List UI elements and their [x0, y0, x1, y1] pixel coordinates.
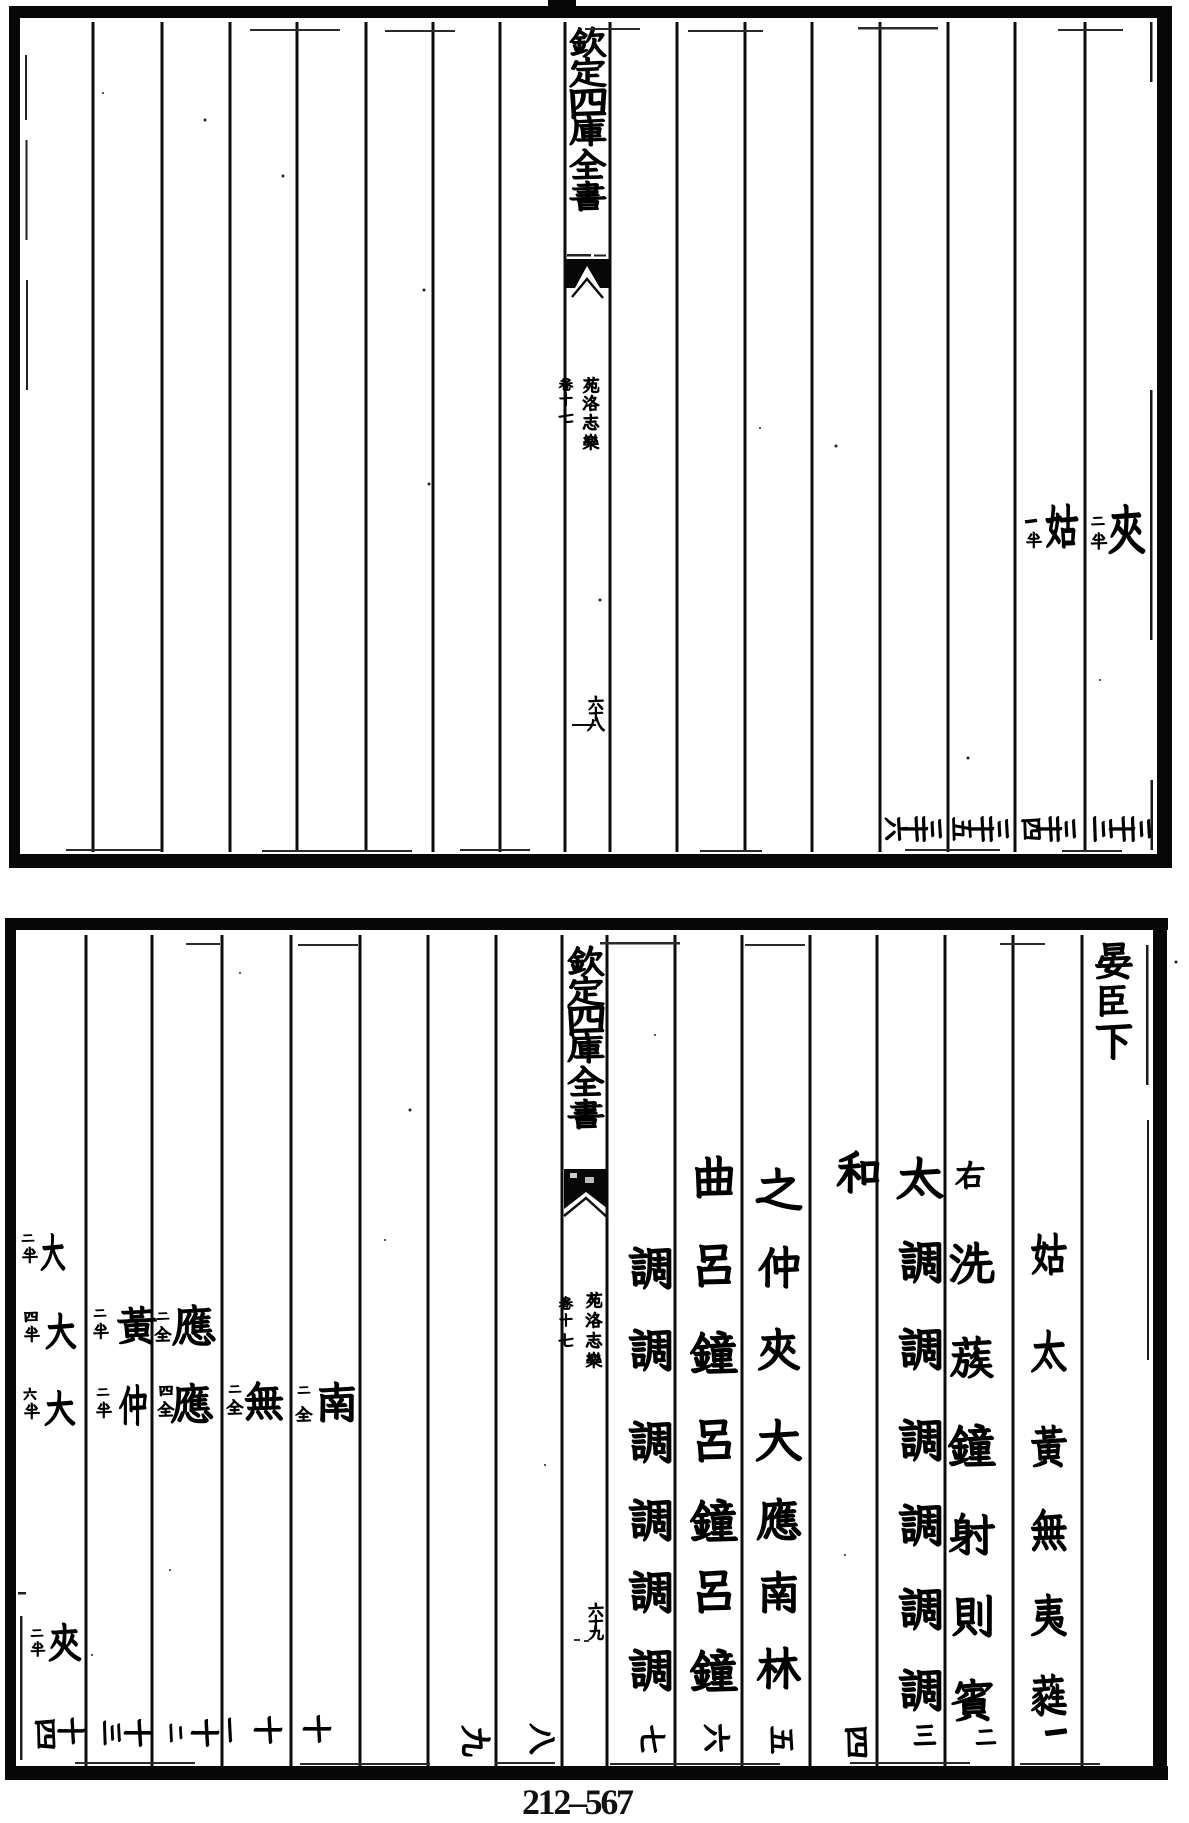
svg-text:212–567: 212–567	[522, 1782, 634, 1818]
